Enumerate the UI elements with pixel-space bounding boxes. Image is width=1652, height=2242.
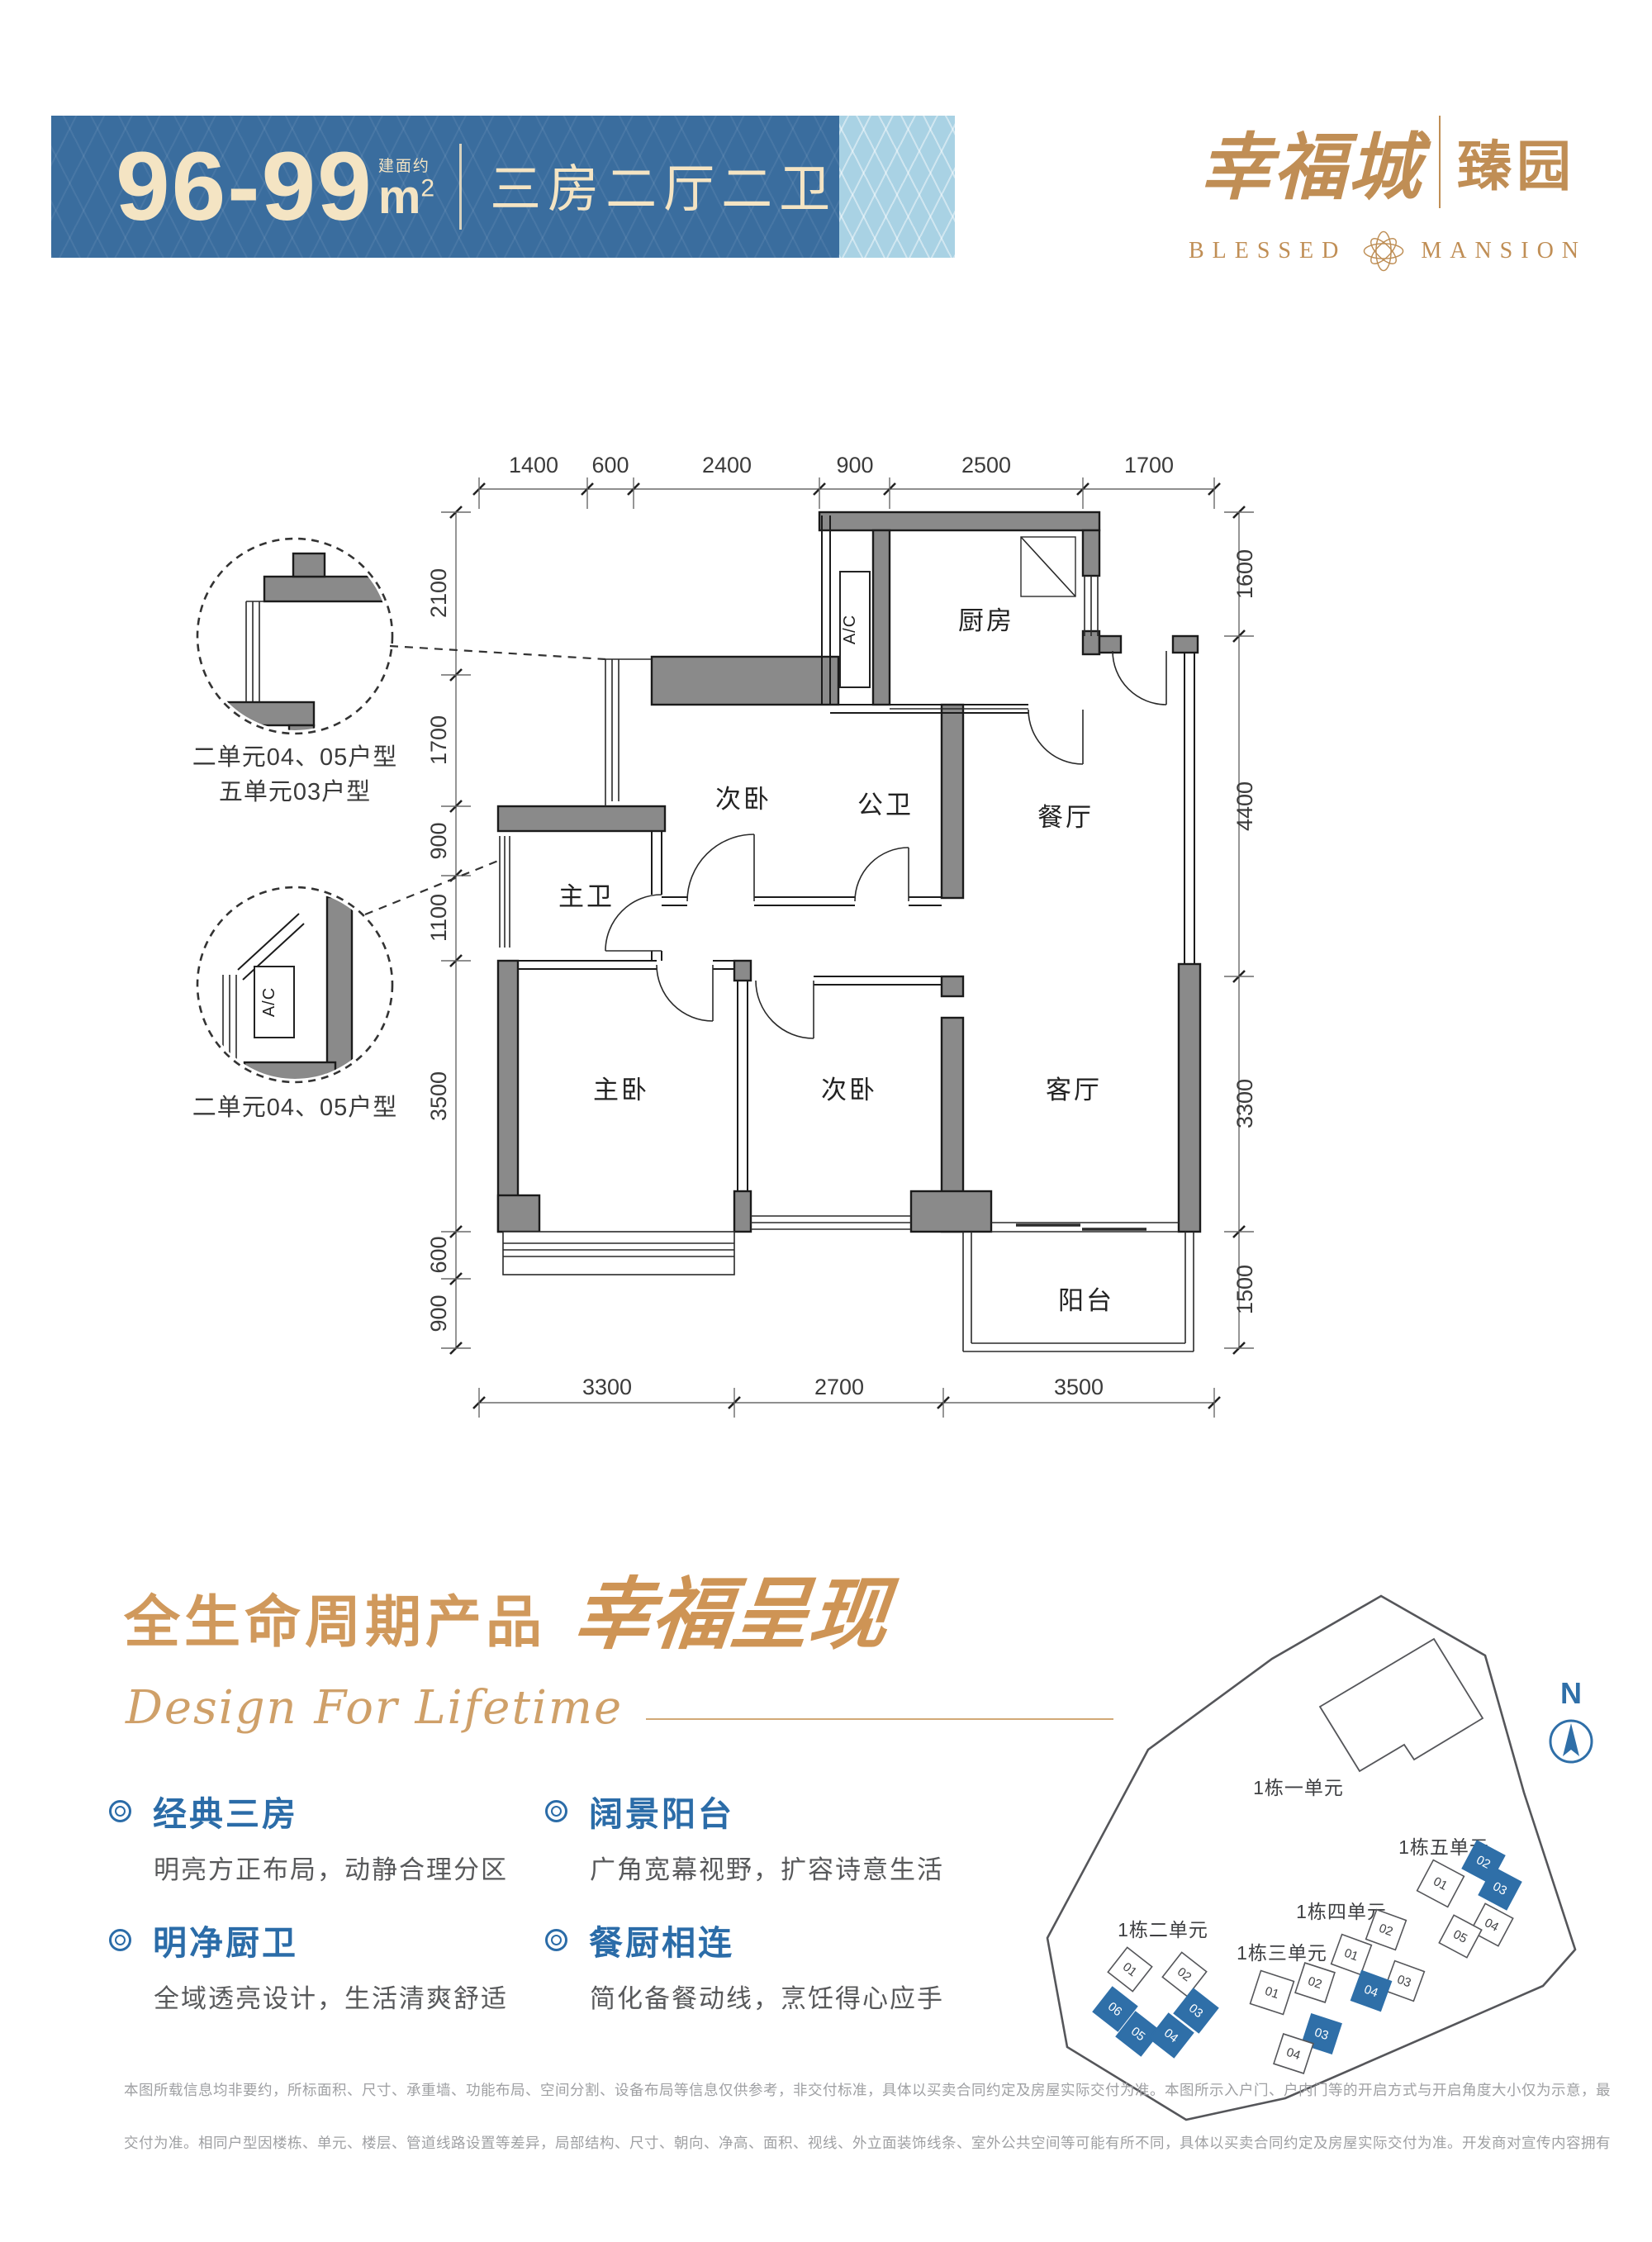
room-label-dining: 餐厅 bbox=[1037, 803, 1094, 832]
site-plan: 1栋一单元 1栋二单元 01 02 06 05 04 03 1栋三单元 01 0… bbox=[1024, 1570, 1602, 2148]
disclaimer-line1: 本图所载信息均非要约，所标面积、尺寸、承重墙、功能布局、空间分割、设备布局等信息… bbox=[124, 2064, 1611, 2116]
section-heading: 全生命周期产品 幸福呈现 bbox=[124, 1576, 888, 1658]
svg-text:1600: 1600 bbox=[1232, 549, 1257, 599]
room-label-living: 客厅 bbox=[1046, 1076, 1102, 1104]
svg-text:2400: 2400 bbox=[702, 453, 752, 477]
svg-text:1500: 1500 bbox=[1232, 1265, 1257, 1314]
building-1-unit2-label: 1栋二单元 bbox=[1118, 1919, 1208, 1940]
logo-en-right: MANSION bbox=[1421, 238, 1587, 264]
feature-desc: 全域透亮设计，生活清爽舒适 bbox=[154, 1978, 539, 2015]
room-label-bed2-top: 次卧 bbox=[715, 785, 771, 814]
svg-text:3300: 3300 bbox=[582, 1375, 632, 1399]
svg-text:N: N bbox=[1560, 1676, 1582, 1710]
feature-clean-kitchen-bath: 明净厨卫 全域透亮设计，生活清爽舒适 bbox=[109, 1915, 539, 2015]
svg-text:900: 900 bbox=[426, 822, 451, 859]
area-banner: 96-99 建面约 m2 三房二厅二卫 bbox=[51, 116, 839, 258]
feature-desc: 明亮方正布局，动静合理分区 bbox=[154, 1849, 539, 1886]
feature-desc: 广角宽幕视野，扩容诗意生活 bbox=[590, 1849, 975, 1886]
building-1-unit3-label: 1栋三单元 bbox=[1237, 1942, 1327, 1964]
feature-title: 餐厨相连 bbox=[589, 1915, 734, 1964]
feature-dining-kitchen: 餐厨相连 简化备餐动线，烹饪得心应手 bbox=[545, 1915, 975, 2015]
callout1-line2: 五单元03户型 bbox=[219, 778, 371, 805]
logo-cn-main: 幸福城 bbox=[1199, 109, 1422, 214]
room-label-balcony: 阳台 bbox=[1058, 1286, 1114, 1315]
room-label-bath-public: 公卫 bbox=[857, 791, 914, 819]
svg-text:1100: 1100 bbox=[426, 894, 451, 942]
svg-text:2500: 2500 bbox=[961, 453, 1011, 477]
svg-text:600: 600 bbox=[591, 453, 629, 477]
bullet-icon bbox=[545, 1929, 567, 1951]
svg-text:1400: 1400 bbox=[509, 453, 558, 477]
section-title-script: 幸福呈现 bbox=[571, 1579, 892, 1651]
area-unit: 建面约 m2 bbox=[378, 154, 434, 219]
room-label-bed2-bottom: 次卧 bbox=[821, 1076, 877, 1104]
callout1-line1: 二单元04、05户型 bbox=[192, 743, 398, 771]
feature-desc: 简化备餐动线，烹饪得心应手 bbox=[590, 1978, 975, 2015]
room-label-bed-master: 主卧 bbox=[593, 1076, 649, 1104]
svg-text:3300: 3300 bbox=[1232, 1079, 1257, 1128]
dimension-left: 2100 1700 900 1100 3500 600 900 bbox=[426, 506, 471, 1354]
svg-text:4400: 4400 bbox=[1232, 781, 1257, 831]
svg-text:1700: 1700 bbox=[1124, 453, 1174, 477]
doors bbox=[605, 651, 1166, 1038]
layout-text: 三房二厅二卫 bbox=[490, 147, 837, 226]
ac-label: A/C bbox=[841, 615, 859, 644]
feature-wide-balcony: 阔景阳台 广角宽幕视野，扩容诗意生活 bbox=[545, 1786, 975, 1886]
svg-text:1700: 1700 bbox=[426, 715, 451, 765]
banner-pattern-panel bbox=[839, 116, 955, 258]
room-label-kitchen: 厨房 bbox=[958, 606, 1014, 635]
area-range: 96-99 bbox=[116, 138, 373, 235]
detail-callout-2: A/C 二单元04、05户型 bbox=[192, 861, 498, 1121]
windows bbox=[500, 576, 1194, 1351]
svg-text:600: 600 bbox=[426, 1236, 451, 1273]
callout2-line1: 二单元04、05户型 bbox=[192, 1094, 398, 1121]
detail-callout-1: 二单元04、05户型 五单元03户型 bbox=[192, 539, 605, 805]
disclaimer-line2: 交付为准。相同户型因楼栋、单元、楼层、管道线路设置等差异，局部结构、尺寸、朝向、… bbox=[124, 2116, 1611, 2169]
logo-en-left: BLESSED bbox=[1189, 238, 1346, 264]
section-subtitle-row: Design For Lifetime bbox=[126, 1681, 1113, 1735]
svg-text:3500: 3500 bbox=[1054, 1375, 1104, 1399]
dimension-right: 1600 4400 3300 1500 bbox=[1224, 506, 1257, 1354]
svg-text:2700: 2700 bbox=[814, 1375, 864, 1399]
svg-text:3500: 3500 bbox=[426, 1071, 451, 1121]
north-compass-icon: N bbox=[1550, 1676, 1592, 1762]
bullet-icon bbox=[545, 1800, 567, 1822]
svg-text:900: 900 bbox=[426, 1294, 451, 1332]
bullet-icon bbox=[109, 1800, 131, 1822]
feature-title: 明净厨卫 bbox=[153, 1915, 298, 1964]
feature-title: 阔景阳台 bbox=[589, 1786, 734, 1836]
room-label-bath-master: 主卫 bbox=[558, 882, 615, 911]
bullet-icon bbox=[109, 1929, 131, 1951]
knot-icon bbox=[1360, 227, 1408, 275]
svg-text:900: 900 bbox=[836, 453, 873, 477]
section-title: 全生命周期产品 bbox=[124, 1576, 546, 1658]
floorplan: 1400 600 2400 900 2500 1700 3300 2700 35… bbox=[165, 438, 1305, 1470]
dimension-top: 1400 600 2400 900 2500 1700 bbox=[473, 453, 1220, 509]
logo-divider bbox=[1439, 116, 1441, 208]
brand-logo: 幸福城 臻园 BLESSED MANSION bbox=[1156, 109, 1619, 275]
feature-title: 经典三房 bbox=[153, 1786, 298, 1836]
feature-classic-3br: 经典三房 明亮方正布局，动静合理分区 bbox=[109, 1786, 539, 1886]
svg-text:A/C: A/C bbox=[260, 987, 278, 1017]
building-1-unit1-label: 1栋一单元 bbox=[1253, 1777, 1344, 1798]
area-unit-sup: 2 bbox=[420, 175, 434, 202]
brochure-page: 96-99 建面约 m2 三房二厅二卫 幸福城 臻园 BLESSED bbox=[0, 0, 1652, 2242]
banner-divider bbox=[459, 144, 462, 230]
dimension-bottom: 3300 2700 3500 bbox=[473, 1375, 1220, 1418]
section-subtitle: Design For Lifetime bbox=[126, 1681, 623, 1735]
disclaimer: 本图所载信息均非要约，所标面积、尺寸、承重墙、功能布局、空间分割、设备布局等信息… bbox=[124, 2064, 1611, 2169]
logo-cn-sub: 臻园 bbox=[1457, 122, 1576, 202]
area-unit-m: m bbox=[378, 170, 421, 224]
svg-text:2100: 2100 bbox=[426, 568, 451, 618]
